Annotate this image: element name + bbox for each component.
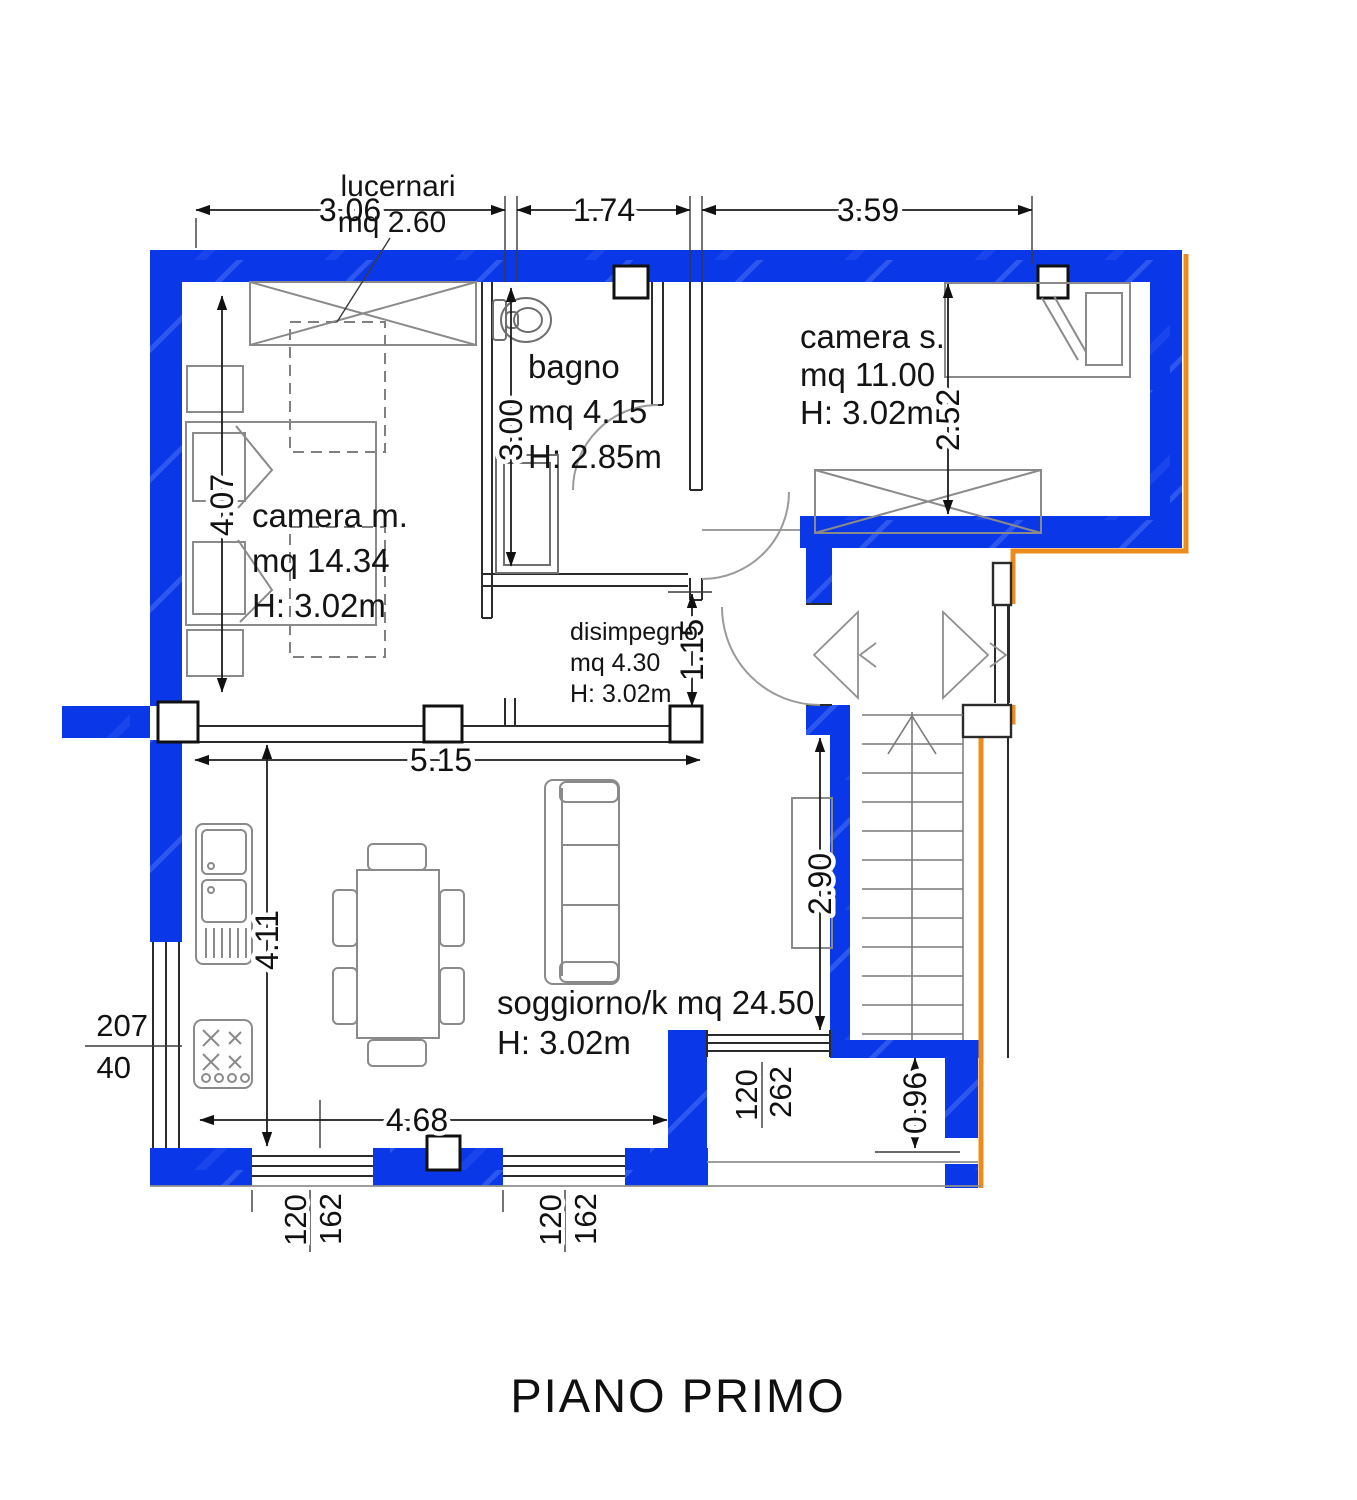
bagno-area: mq 4.15 (528, 393, 647, 430)
kitchen-sink-unit (196, 824, 252, 964)
label-camera-s: camera s. mq 11.00 H: 3.02m (800, 318, 945, 431)
landing-jamb-lower (963, 705, 1011, 737)
kitchen-window-w: 207 (96, 1008, 148, 1043)
camera-s-door-arc (702, 492, 789, 579)
floorplan-page: 3.06 1.74 3.59 4.07 3.00 2.52 1.15 5.15 … (0, 0, 1357, 1500)
column-post-1 (158, 702, 198, 742)
skylight-marker-top (614, 266, 648, 298)
lucernari-line1: lucernari (340, 170, 455, 203)
entrance-door-arc (722, 607, 820, 705)
pillow-camera-s (1086, 293, 1122, 365)
label-soggiorno: soggiorno/k mq 24.50 H: 3.02m (497, 984, 814, 1061)
dim-soggiorno-width: 4.68 (386, 1102, 448, 1138)
south-window-2 (503, 1156, 625, 1176)
blanket-fold-1 (236, 426, 272, 508)
landing-jamb-upper (993, 563, 1011, 605)
camera-s-name: camera s. (800, 318, 945, 355)
wall-top (150, 250, 1182, 282)
chair (333, 890, 357, 946)
dim-disimpegno-width: 5.15 (410, 742, 472, 778)
camera-m-area: mq 14.34 (252, 542, 390, 579)
dim-top-right: 3.59 (837, 192, 899, 228)
camera-s-height: H: 3.02m (800, 394, 934, 431)
wall-left-upper (150, 250, 182, 706)
label-camera-m: camera m. mq 14.34 H: 3.02m (252, 497, 408, 624)
south-window-2-h: 120 (533, 1194, 568, 1246)
wall-left-stub (62, 706, 150, 738)
dim-stair-side: 2.90 (802, 853, 838, 915)
south-window-2-w: 162 (568, 1193, 603, 1245)
floorplan-svg: 3.06 1.74 3.59 4.07 3.00 2.52 1.15 5.15 … (0, 0, 1357, 1500)
landing-right-window (995, 605, 1009, 703)
column-post-2 (424, 706, 462, 742)
balcony-window-h: 120 (729, 1069, 764, 1121)
camera-s-area: mq 11.00 (800, 356, 935, 393)
bagno-name: bagno (528, 348, 620, 385)
bagno-height: H: 2.85m (528, 438, 662, 475)
kitchen-window-label: 207 40 (85, 1008, 182, 1085)
toilet-tank (493, 300, 506, 340)
dim-balcony-side: 0.96 (897, 1072, 933, 1134)
door-triangle-left (814, 612, 858, 698)
wall-balcony-left (668, 1030, 707, 1186)
plan-title: PIANO PRIMO (510, 1369, 845, 1422)
soggiorno-height: H: 3.02m (497, 1024, 631, 1061)
lucernari-line2: mq 2.60 (338, 206, 446, 239)
kitchen-window-h: 40 (97, 1050, 131, 1085)
chair (368, 844, 426, 870)
chair (333, 968, 357, 1024)
balcony-window-label: 120 262 (729, 1062, 798, 1128)
wall-stair-bottom (833, 1040, 979, 1058)
soggiorno-name-area: soggiorno/k mq 24.50 (497, 984, 814, 1021)
wall-balcony-right-lower (945, 1164, 978, 1188)
pillow-2 (193, 542, 245, 614)
balcony-window-w: 262 (763, 1066, 798, 1118)
column-post-3 (670, 706, 702, 742)
sofa (545, 780, 619, 984)
south-window-1-label: 120 162 (252, 1190, 348, 1252)
nightstand-2 (187, 630, 243, 676)
wall-landing-stub-upper (806, 548, 832, 604)
kitchen-window (153, 942, 179, 1148)
south-window-1 (252, 1156, 373, 1176)
toilet-icon (501, 298, 551, 342)
disimpegno-name: disimpegno (570, 618, 698, 646)
nightstand-1 (187, 366, 243, 412)
dim-top-mid: 1.74 (573, 192, 635, 228)
chair (440, 890, 464, 946)
disimpegno-area: mq 4.30 (570, 649, 660, 677)
south-window-1-h: 120 (278, 1194, 313, 1246)
chevron-left-icon (860, 643, 876, 667)
south-window-2-label: 120 162 (503, 1190, 603, 1252)
wall-bottom-left (150, 1148, 252, 1186)
dim-camera-m-side: 4.07 (204, 474, 240, 536)
dim-bagno-side: 3.00 (493, 399, 529, 461)
dim-soggiorno-side: 4.11 (249, 910, 285, 970)
chair (440, 968, 464, 1024)
wall-left-mid (150, 740, 182, 942)
stairs (862, 712, 963, 1040)
wall-balcony-right-upper (945, 1058, 978, 1138)
balcony-window (707, 1030, 830, 1057)
disimpegno-height: H: 3.02m (570, 680, 671, 708)
south-window-1-w: 162 (313, 1193, 348, 1245)
wall-right (1150, 250, 1182, 548)
door-triangle-right (943, 612, 988, 698)
chevron-right-icon (990, 643, 1006, 667)
label-bagno: bagno mq 4.15 H: 2.85m (528, 348, 662, 475)
skylight-dashed-1 (290, 322, 385, 452)
label-lucernari: lucernari mq 2.60 (337, 170, 456, 322)
dining-table (357, 870, 439, 1038)
skylight-marker-bottom (427, 1136, 460, 1170)
landing-symbols (814, 612, 1006, 698)
camera-m-name: camera m. (252, 497, 408, 534)
camera-m-height: H: 3.02m (252, 587, 386, 624)
dim-camera-s-side: 2.52 (930, 389, 966, 451)
chair (368, 1040, 426, 1066)
